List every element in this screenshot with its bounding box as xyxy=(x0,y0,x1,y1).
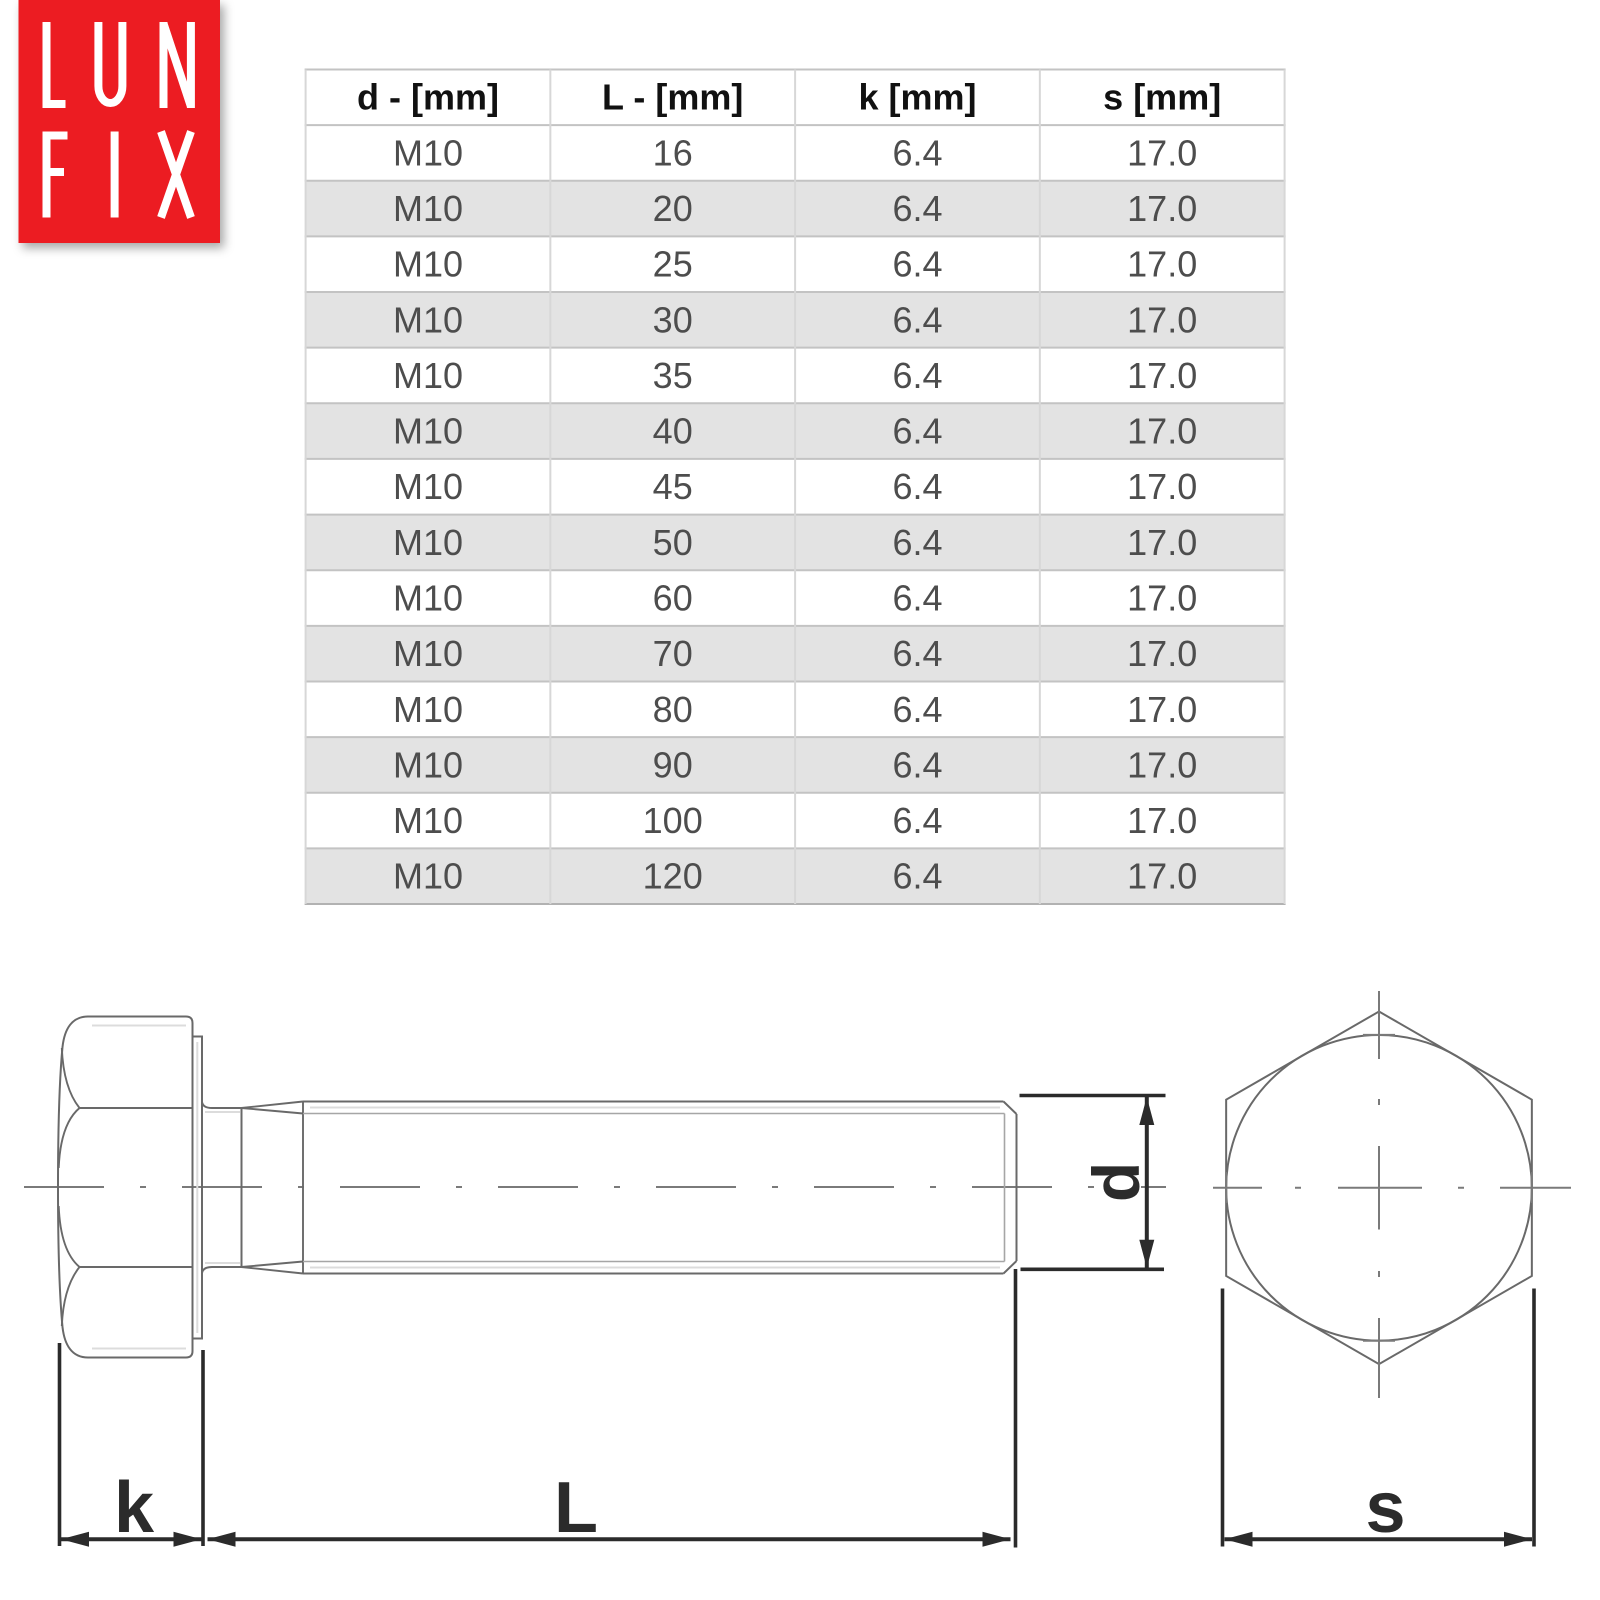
svg-text:M10: M10 xyxy=(393,578,463,619)
svg-text:17.0: 17.0 xyxy=(1127,188,1197,229)
svg-text:L - [mm]: L - [mm] xyxy=(602,77,743,118)
svg-text:60: 60 xyxy=(653,578,693,619)
svg-text:45: 45 xyxy=(653,466,693,507)
svg-text:6.4: 6.4 xyxy=(892,355,942,396)
svg-text:M10: M10 xyxy=(393,188,463,229)
svg-text:17.0: 17.0 xyxy=(1127,466,1197,507)
svg-text:M10: M10 xyxy=(393,633,463,674)
svg-text:6.4: 6.4 xyxy=(892,188,942,229)
svg-text:80: 80 xyxy=(653,689,693,730)
svg-text:6.4: 6.4 xyxy=(892,299,942,340)
svg-text:s [mm]: s [mm] xyxy=(1103,77,1221,118)
svg-text:d: d xyxy=(1079,1162,1153,1202)
svg-text:d - [mm]: d - [mm] xyxy=(357,77,499,118)
svg-text:6.4: 6.4 xyxy=(892,411,942,452)
svg-text:M10: M10 xyxy=(393,800,463,841)
svg-text:70: 70 xyxy=(653,633,693,674)
svg-text:6.4: 6.4 xyxy=(892,578,942,619)
svg-text:M10: M10 xyxy=(393,299,463,340)
svg-text:6.4: 6.4 xyxy=(892,466,942,507)
svg-text:30: 30 xyxy=(653,299,693,340)
svg-text:90: 90 xyxy=(653,744,693,785)
svg-text:M10: M10 xyxy=(393,244,463,285)
svg-text:25: 25 xyxy=(653,244,693,285)
svg-text:17.0: 17.0 xyxy=(1127,800,1197,841)
svg-text:20: 20 xyxy=(653,188,693,229)
svg-text:M10: M10 xyxy=(393,744,463,785)
svg-text:35: 35 xyxy=(653,355,693,396)
svg-text:17.0: 17.0 xyxy=(1127,411,1197,452)
svg-text:M10: M10 xyxy=(393,856,463,897)
svg-text:50: 50 xyxy=(653,522,693,563)
svg-text:17.0: 17.0 xyxy=(1127,522,1197,563)
svg-text:17.0: 17.0 xyxy=(1127,689,1197,730)
svg-text:17.0: 17.0 xyxy=(1127,744,1197,785)
svg-text:M10: M10 xyxy=(393,689,463,730)
svg-text:M10: M10 xyxy=(393,355,463,396)
svg-text:17.0: 17.0 xyxy=(1127,299,1197,340)
svg-text:17.0: 17.0 xyxy=(1127,244,1197,285)
svg-text:6.4: 6.4 xyxy=(892,244,942,285)
svg-text:6.4: 6.4 xyxy=(892,689,942,730)
svg-text:k [mm]: k [mm] xyxy=(858,77,976,118)
svg-text:17.0: 17.0 xyxy=(1127,355,1197,396)
svg-text:120: 120 xyxy=(643,856,703,897)
svg-text:s: s xyxy=(1365,1468,1405,1548)
svg-text:17.0: 17.0 xyxy=(1127,856,1197,897)
svg-text:40: 40 xyxy=(653,411,693,452)
svg-text:6.4: 6.4 xyxy=(892,633,942,674)
svg-text:6.4: 6.4 xyxy=(892,522,942,563)
svg-text:k: k xyxy=(114,1468,155,1548)
svg-text:M10: M10 xyxy=(393,132,463,173)
svg-text:17.0: 17.0 xyxy=(1127,132,1197,173)
svg-text:6.4: 6.4 xyxy=(892,856,942,897)
svg-text:100: 100 xyxy=(643,800,703,841)
svg-text:17.0: 17.0 xyxy=(1127,578,1197,619)
svg-text:6.4: 6.4 xyxy=(892,132,942,173)
svg-text:M10: M10 xyxy=(393,466,463,507)
svg-text:M10: M10 xyxy=(393,411,463,452)
svg-text:6.4: 6.4 xyxy=(892,800,942,841)
svg-text:L: L xyxy=(554,1468,598,1548)
svg-text:6.4: 6.4 xyxy=(892,744,942,785)
svg-text:16: 16 xyxy=(653,132,693,173)
svg-text:M10: M10 xyxy=(393,522,463,563)
svg-text:17.0: 17.0 xyxy=(1127,633,1197,674)
